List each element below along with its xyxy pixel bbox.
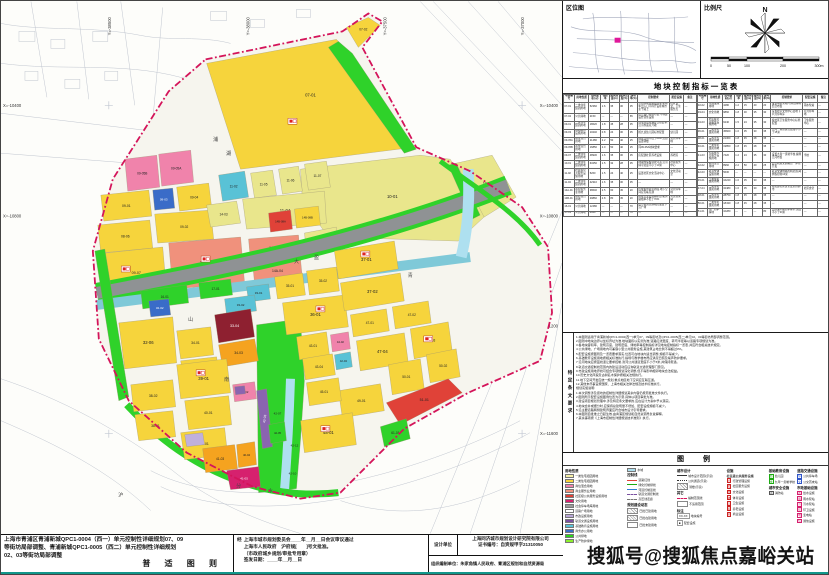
legend-section-title: 设施 <box>727 468 767 473</box>
legend-swatch-icon <box>565 499 574 503</box>
legend-item: XX-XX地块编号 <box>677 513 725 519</box>
legend-swatch-icon <box>565 484 574 488</box>
legend-column: 水域控制线道路红线绿化控制绿线河道控制蓝线轨道交通控制线高压线走廊规划建设动态已… <box>627 468 677 544</box>
parcel-label: 11-06 <box>287 178 295 182</box>
table-row: 48-01二类住宅组团用地287501.8452835——— <box>697 193 829 201</box>
legend-swatch-icon <box>565 504 574 508</box>
road-name-char: 盈 <box>314 255 319 261</box>
legend-column: 用地性质一类住宅组团用地二类住宅组团用地商住混合用地商业服务业用地社区级公共服务… <box>565 468 627 544</box>
approval-line1: 上海市城市规划委员会____年__月__日会议审议通过 <box>244 537 354 544</box>
table-row: 09-01二类住宅组团用地186201.8452835住宅布局应满足日照要求,沿… <box>564 121 697 129</box>
info-panel: 区位图 比例尺 N <box>563 1 829 572</box>
legend-item: 信通信设施 <box>797 519 826 524</box>
legend-facility-icon: 商 <box>727 512 732 517</box>
legend-item-label: 卫生设施 <box>733 501 745 505</box>
legend-facility-icon: 水 <box>797 491 802 496</box>
indicator-table: 地块编号用地性质用地面积(㎡)容积率建筑高度(m)建筑密度(%)绿地率(%)控制… <box>563 94 697 217</box>
legend-line-icon <box>627 499 637 500</box>
legend-item: 编制范围线 <box>677 496 725 500</box>
legend-item: 公共绿地 <box>565 534 625 538</box>
legend-section-title: 控制线 <box>627 472 675 477</box>
legend-swatch-icon <box>565 519 574 523</box>
north-arrow-icon: N <box>745 7 785 53</box>
legend-item: 绿化控制绿线 <box>627 483 675 487</box>
parcel-label: 42-10 <box>289 472 297 476</box>
legend-section-title: 规划建设动态 <box>627 502 675 507</box>
table-row: 42-02商住混合用地89602.2504025结合轨道交通站点一体化开发—— <box>697 162 829 170</box>
legend-item: 卫卫生设施 <box>727 501 767 506</box>
legend-item-label: 九年一贯制学校 <box>775 480 795 484</box>
legend-facility-icon: 行 <box>727 478 732 483</box>
legend-facility-icon: 停 <box>797 474 802 479</box>
grid-y-label: Y=-38000 <box>246 16 251 35</box>
legend-item: 养养老设施 <box>727 506 767 511</box>
parcel-label: 32-02 <box>156 306 164 310</box>
road-name-char: 湖 <box>226 150 231 157</box>
legend-item: 社区级公共服务设施用地 <box>565 494 625 498</box>
parcel-label: 33-02 <box>237 303 245 307</box>
legend-column: 基础教育设施幼幼儿园学九年一贯制学校城市安全设施消消防站 <box>769 468 797 544</box>
legend-item: 轨道交通设施用地 <box>565 519 625 523</box>
road-name-char: 山 <box>188 316 193 323</box>
parcel-label: 09-05A <box>171 166 182 170</box>
map-type-label: 普 适 图 则 <box>142 558 223 569</box>
legend-item-label: 配套设施 <box>684 521 696 525</box>
legend-item-label: 公共通道(示意) <box>688 479 707 483</box>
parcel-label: 14B-08B <box>302 215 313 219</box>
road-name-char: 青 <box>408 272 413 279</box>
location-marker <box>615 38 621 43</box>
legend-annotation-icon: XX-XX <box>677 513 690 519</box>
grid-x-label: X=-10800 <box>540 214 559 219</box>
legend-section-title: 标注 <box>677 508 725 513</box>
parcel-label: 39-01 <box>198 376 209 381</box>
legend-hatch-icon <box>627 522 638 528</box>
parcel-label: 32-06 <box>143 340 154 345</box>
table-header: 用地性质 <box>708 95 722 103</box>
table-header: 备注 <box>817 95 829 103</box>
legend-item: 道路红线 <box>627 478 675 482</box>
legend-item-label: 水域 <box>637 468 643 472</box>
legend-section-title: 道路交通设施 <box>797 468 826 473</box>
legend-line-icon <box>677 480 687 481</box>
table-header: 配套设施 <box>669 95 683 103</box>
legend-item-label: 一类住宅组团用地 <box>575 474 598 478</box>
map-parcel <box>235 386 246 395</box>
parcel-label: 11-05 <box>260 182 268 186</box>
table-row: 33-04文化用地98601.8303530设置社区文化中心及地下公共停车库公共… <box>697 110 829 118</box>
parcel-label: 07-01 <box>305 93 316 98</box>
parcel-label: 08-06 <box>121 235 130 239</box>
scale-tick-label: 300m <box>815 64 824 68</box>
legend-line-icon <box>677 475 687 476</box>
legend-item-label: 文化设施 <box>733 490 745 494</box>
legend-item: 高压线走廊 <box>627 497 675 501</box>
parcel-label: 33-01 <box>255 291 263 295</box>
legend-item-label: 商业服务业用地 <box>575 489 595 493</box>
legend-line-icon <box>627 480 637 481</box>
table-row: 34-03社区级公共服务设施用地62401.5243530按社区卫生服务中心标准… <box>697 118 829 129</box>
legend-title: 图 例 <box>563 453 829 466</box>
legend-item-label: 道路广场用地 <box>575 509 592 513</box>
legend-facility-icon: 文 <box>727 490 732 495</box>
legend-item: 已批已建用地 <box>627 508 675 514</box>
scale-tick-label: 50 <box>727 64 731 68</box>
design-org-cell: 设计单位 上海同济城市规划设计研究院有限公司 证书编号：自资规甲字2131005… <box>429 535 563 572</box>
legend-hatch-icon <box>627 515 638 521</box>
table-row: 07-01二类住宅组团用地523601.6353035沿街建筑应贴线建设,机动车… <box>564 102 697 113</box>
parcel-label: 09-05B <box>137 171 147 175</box>
parcel-label: 10-01 <box>387 194 398 199</box>
table-row: 11-02社区级公共服务设施用地52601.5244025设置社区文化活动中心文… <box>564 169 697 180</box>
table-row: 09-03基础教育设施用地102400.8243035按九班幼儿园标准配置幼儿园… <box>564 129 697 137</box>
legend-swatch-icon <box>565 529 574 533</box>
parcel-label: 11-07 <box>313 174 321 178</box>
parcel-label: 16-01 <box>161 295 169 299</box>
legend-line-icon <box>627 489 637 490</box>
table-header: 用地面积(㎡) <box>589 95 601 103</box>
legend-item-label: 社区服务设施 <box>733 484 750 488</box>
indicator-tables: 地块编号用地性质用地面积(㎡)容积率建筑高度(m)建筑密度(%)绿地率(%)控制… <box>563 94 829 217</box>
legend-hatch-icon <box>627 508 638 514</box>
parcel-label: 35-01 <box>286 284 294 288</box>
legend-item: 道路广场用地 <box>565 509 625 513</box>
parcel-label: 44-02 <box>337 340 345 344</box>
legend-item-label: 体育设施 <box>733 496 745 500</box>
legend-item-label: 市政设施用地 <box>575 514 592 518</box>
legend-swatch-icon <box>565 509 574 513</box>
legend-item-label: 轨道交通控制线 <box>638 492 658 496</box>
table-header: 建筑高度(m) <box>609 95 619 103</box>
scale-tick-label: 100 <box>744 64 750 68</box>
legend-item-label: 公共绿地 <box>575 534 587 538</box>
legend-facility-icon: 卫 <box>727 501 732 506</box>
table-row: 50-01二类住宅组团用地184301.8452835——— <box>697 201 829 209</box>
grid-x-label: X=-10800 <box>3 214 22 219</box>
scale-tick-label: 0 <box>710 64 712 68</box>
plan-title-line2: 等街坊局部调整、青浦新城QPC1-0005（西二）单元控制性详细规划 <box>4 545 230 553</box>
legend-item: 公共通道(示意) <box>677 479 725 483</box>
legend-item: 商商业设施 <box>727 512 767 517</box>
legend-facility-icon: 交 <box>797 479 802 484</box>
legend-item-label: 社会停车场库用地 <box>575 504 598 508</box>
table-row: 07-02公共绿地2150———65结合慢行通道布置,不得建设经营性设施—— <box>564 113 697 121</box>
parcel-label: 47-04 <box>377 349 388 354</box>
table-row: 41-03社区级公共服务设施用地74201.2243530设置九年一贯制学校,操… <box>697 152 829 163</box>
table-header: 用地性质 <box>574 95 588 103</box>
legend-item-label: 文化用地 <box>575 499 587 503</box>
legend-item: 消消防站 <box>769 491 795 496</box>
parcel-label: 09-04 <box>190 195 198 199</box>
legend-item-label: 污水泵站 <box>803 502 815 506</box>
table-header: 容积率 <box>734 95 743 103</box>
legend-swatch-icon <box>565 524 574 528</box>
legend-item-label: 养老设施 <box>733 507 745 511</box>
planning-sheet: X=-10400X=-10400X=-10800X=-10800X=-11200… <box>0 0 829 575</box>
parcel-label: 50-02 <box>439 364 447 368</box>
parcel-label: 47-01 <box>366 321 374 325</box>
parcel-label: 14-03 <box>220 212 228 216</box>
parcel-label: 42-05 <box>274 431 282 435</box>
legend-item: 文化用地 <box>565 499 625 503</box>
legend-facility-icon: 社 <box>727 484 732 489</box>
parcel-label: 35-02 <box>319 279 327 283</box>
legend-column: 设施社区级公共服务设施行行政管理设施社社区服务设施文文化设施体体育设施卫卫生设施… <box>727 468 769 544</box>
parcel-label: 14B-08A <box>275 219 286 223</box>
legend-item: 水域 <box>627 468 675 472</box>
scale-title: 比例尺 <box>704 3 722 12</box>
legend-facility-icon: 消 <box>769 491 774 496</box>
legend-item-label: 环卫设施 <box>803 508 815 512</box>
location-map-title: 区位图 <box>566 3 584 12</box>
parcel-label: 42-07 <box>274 412 282 416</box>
parcel-label: 36-01 <box>310 312 321 317</box>
table-row: 40-01二类住宅组团用地198501.8452835——— <box>697 144 829 152</box>
legend-facility-icon: 电 <box>797 513 802 518</box>
parcel-label: 09-01 <box>122 204 131 208</box>
legend-item: 社社区服务设施 <box>727 484 767 489</box>
legend-item: 雨雨水泵站 <box>797 496 826 501</box>
map-canvas: X=-10400X=-10400X=-10800X=-10800X=-11200… <box>1 1 562 534</box>
legend-item-label: 社区级公共服务设施用地 <box>575 494 607 498</box>
table-row: 42-03轨道交通设施用地5630————轨道交通线路控制范围,两侧各控制10米… <box>697 170 829 178</box>
planning-map: X=-10400X=-10400X=-10800X=-10800X=-11200… <box>1 1 563 534</box>
sohu-watermark: 搜狐号@搜狐焦点嘉峪关站 <box>587 541 815 568</box>
table-row: 16-01公共绿地12480———70结合轨道交通站点设置下沉广场—— <box>564 203 697 211</box>
grid-y-label: Y=-37000 <box>520 16 525 35</box>
table-row: 10-01二类住宅组团用地632501.5322835地块内保留现状河道,沿河绿… <box>564 161 697 169</box>
legend-facility-icon: 雨 <box>797 496 802 501</box>
legend-hatch-icon <box>677 501 688 507</box>
legend-item: ■配套设施 <box>677 520 725 526</box>
table-header: 控制要求 <box>771 95 803 103</box>
legend-item-label: 已批已建用地 <box>639 509 656 513</box>
legend-item-label: 编制范围线 <box>688 496 702 500</box>
table-row: 38-01二类住宅组团用地213601.8452835——— <box>697 136 829 144</box>
parcel-label: 43-04 <box>315 365 323 369</box>
legend-item-label: 雨水泵站 <box>803 497 815 501</box>
road-name-char: 大 <box>294 258 299 265</box>
provisions-text: 1.本图则适用于青浦新城QPC1-0004(西一)单元07、09等街坊及QPC1… <box>574 333 829 452</box>
legend-item: 行行政管理设施 <box>727 478 767 483</box>
legend-item-label: 二类住宅组团用地 <box>575 479 598 483</box>
legend-item: 污污水泵站 <box>797 502 826 507</box>
legend-annotation-icon: ■ <box>677 520 683 526</box>
indicator-table-title: 地块控制指标一览表 <box>563 79 829 94</box>
parcel-label: 09-03 <box>160 197 168 201</box>
legend-item: 交公交首末站 <box>797 479 826 484</box>
parcel-label: 17-01 <box>212 287 220 291</box>
legend-item: 二类住宅组团用地 <box>565 479 625 483</box>
table-row: 51-01生产防护绿地10280———80沿高速公路防护绿带,宽度不小于30米—… <box>697 209 829 217</box>
grid-x-label: X=-10400 <box>540 103 559 108</box>
provisions-side-label: 特定条文要求 <box>563 333 574 452</box>
grid-x-label: X=-10400 <box>3 103 22 108</box>
parcel-label: 61-01 <box>391 431 399 435</box>
parcel-label: 34-01 <box>191 341 200 345</box>
legend-section-subtitle: 社区级公共服务设施 <box>727 474 767 478</box>
legend-item: 商住混合用地 <box>565 484 625 488</box>
parcel-label: 37-01 <box>361 257 372 262</box>
grid-y-label: Y=-37500 <box>382 16 387 35</box>
legend-item-label: 公交首末站 <box>803 480 817 484</box>
approval-line4: 签发日期：____年__月__日 <box>244 557 354 564</box>
legend-swatch-icon <box>565 494 574 498</box>
scale-tick-label: 200 <box>780 64 786 68</box>
indicator-table: 地块编号用地性质用地面积(㎡)容积率建筑高度(m)建筑密度(%)绿地率(%)控制… <box>697 94 829 217</box>
legend-item-label: 地块编号 <box>691 514 703 518</box>
scale-box: 比例尺 N 050100200300m <box>701 1 829 78</box>
legend-item-label: 绿化控制绿线 <box>638 483 655 487</box>
legend-item-label: 行政管理设施 <box>733 479 750 483</box>
legend-columns: 用地性质一类住宅组团用地二类住宅组团用地商住混合用地商业服务业用地社区级公共服务… <box>563 466 829 545</box>
indicator-table-box: 地块控制指标一览表 地块编号用地性质用地面积(㎡)容积率建筑高度(m)建筑密度(… <box>563 79 829 333</box>
legend-section-title: 城市安全设施 <box>769 485 795 490</box>
legend-swatch-icon <box>565 534 574 538</box>
parcel-label: 40-01 <box>204 411 213 415</box>
legend-item-label: 变电站 <box>803 513 812 517</box>
legend-swatch-icon <box>565 514 574 518</box>
plan-title-cell: 上海市青浦区青浦新城QPC1-0004（西一）单元控制性详细规划07、09 等街… <box>1 535 234 572</box>
legend-facility-icon: 养 <box>727 506 732 511</box>
parcel-label: 34-03 <box>234 351 243 355</box>
parcel-label: 40-04 <box>243 453 251 457</box>
table-row: 14A-01商业服务业用地386402.5604520形成集中商业界面,地下空间… <box>564 188 697 196</box>
legend-column: 道路交通设施停公共停车场交公交首末站市政基础设施水给水设施雨雨水泵站污污水泵站环… <box>797 468 828 544</box>
legend-item: 轨道交通控制线 <box>627 492 675 496</box>
scale-graphic: N 050100200300m <box>701 1 829 77</box>
legend-item-label: 高压线走廊 <box>638 497 652 501</box>
legend-item-label: 通信设施 <box>803 519 815 523</box>
table-row: 32-02市政设施用地42801.2154020设置雨水泵站,与周边绿地结合布置… <box>697 102 829 110</box>
location-map-sketch <box>563 1 700 76</box>
legend-item-label: 轨道交通设施用地 <box>575 519 598 523</box>
table-header: 用地面积(㎡) <box>722 95 734 103</box>
map-parcel <box>185 433 205 447</box>
table-header: 建筑密度(%) <box>753 95 763 103</box>
legend-facility-icon: 污 <box>797 502 802 507</box>
parcel-label: 50-01 <box>402 375 410 379</box>
parcel-label: 33-04 <box>230 324 239 328</box>
legend-facility-icon: 环 <box>797 507 802 512</box>
legend-item: 市政设施用地 <box>565 514 625 518</box>
location-map-box: 区位图 <box>563 1 701 78</box>
title-block: 上海市青浦区青浦新城QPC1-0004（西一）单元控制性详细规划07、09 等街… <box>1 534 563 572</box>
road-name-char: 沪 <box>118 492 123 499</box>
legend-column: 城市设计城市设计范围(示意)公共通道(示意)骑楼(示意)其它编制范围线不适用范围… <box>677 468 727 544</box>
legend-item: 停公共停车场 <box>797 474 826 479</box>
parcel-label: 37-02 <box>367 289 378 294</box>
special-provisions-box: 特定条文要求 1.本图则适用于青浦新城QPC1-0004(西一)单元07、09等… <box>563 333 829 453</box>
legend-item-label: 不适用范围 <box>689 502 703 506</box>
legend-item: 商务办公用地 <box>565 529 625 533</box>
legend-swatch-icon <box>565 539 574 543</box>
legend-item: 基础教育设施用地 <box>565 524 625 528</box>
legend-facility-icon: 信 <box>797 519 802 524</box>
legend-item-label: 给水设施 <box>803 491 815 495</box>
grid-x-label: X=-11600 <box>540 431 559 436</box>
design-unit-label: 设计单位 <box>429 535 458 555</box>
parcel-label: 38-02 <box>149 394 158 398</box>
parcel-label: 51-01 <box>420 398 429 402</box>
legend-facility-icon: 学 <box>769 479 774 484</box>
legend-facility-icon: 幼 <box>769 474 774 479</box>
legend-item-label: 幼儿园 <box>775 474 784 478</box>
legend-item: 社会停车场库用地 <box>565 504 625 508</box>
legend-item: 一类住宅组团用地 <box>565 474 625 478</box>
parcel-label: 41-03 <box>216 457 224 461</box>
approval-prefix: 经 <box>237 537 242 570</box>
table-header: 配套设施 <box>803 95 817 103</box>
table-header: 容积率 <box>601 95 610 103</box>
legend-item: 不适用范围 <box>677 501 725 507</box>
note-line: 7.其余事项按《上海市控制性详细规划技术准则》执行。 <box>576 416 828 420</box>
legend-item-label: 城市设计范围(示意) <box>688 474 713 478</box>
table-header: 建筑高度(m) <box>743 95 753 103</box>
table-row: 36-01二类住宅组团用地458201.6353035沿河一侧应退让蓝线不小于1… <box>697 128 829 136</box>
table-row: 17-01公共绿地8620———70——— <box>564 211 697 216</box>
table-header: 控制要求 <box>637 95 669 103</box>
legend-item: 环环卫设施 <box>797 507 826 512</box>
table-header: 建筑密度(%) <box>619 95 629 103</box>
legend-swatch-icon <box>627 468 636 472</box>
parcel-label: 07-02 <box>359 28 367 32</box>
legend-hatch-icon <box>677 483 688 489</box>
table-row: 11-04二类住宅组团用地423101.6353035——— <box>564 180 697 188</box>
table-row: 47-04二类住宅组团用地324801.6353035应配建社区食堂及生鲜超市社… <box>697 185 829 193</box>
legend-item: 已批在建用地 <box>627 515 675 521</box>
parcel-label: 43-01 <box>309 344 317 348</box>
parcel-label: 09-02 <box>180 225 188 229</box>
legend-item: 电变电站 <box>797 513 826 518</box>
legend-line-icon <box>677 498 687 499</box>
approval-cell: 经 上海市城市规划委员会____年__月__日会议审议通过 上海市人民政府 沪府… <box>234 535 429 572</box>
legend-section-title: 用地性质 <box>565 468 625 473</box>
table-header: 绿地率(%) <box>762 95 771 103</box>
legend-swatch-icon <box>565 479 574 483</box>
legend-facility-icon: 体 <box>727 495 732 500</box>
legend-item-label: 已批未建用地 <box>639 523 656 527</box>
legend-item: 骑楼(示意) <box>677 483 725 489</box>
legend-section-title: 基础教育设施 <box>769 468 795 473</box>
approval-line2: 上海市人民政府 沪府规[ ]号文批准。 <box>244 544 354 551</box>
parcel-label: 14A-04 <box>272 269 283 273</box>
legend-item-label: 基础教育设施用地 <box>575 524 598 528</box>
legend-item: 已批未建用地 <box>627 522 675 528</box>
organizing-unit: 组织编制单位：朱家角镇人民政府、青浦区规划和自然资源局 <box>429 556 563 572</box>
road-name-char: 分 <box>236 483 241 490</box>
scale-bar: 050100200300m <box>710 57 824 68</box>
parcel-label: 11-02 <box>230 184 238 188</box>
table-header: 地块编号 <box>564 95 575 103</box>
table-header: 绿地率(%) <box>629 95 638 103</box>
legend-item: 水给水设施 <box>797 491 826 496</box>
table-row: 09-07二类住宅组团用地489301.6353035应配建社区养老设施养老院— <box>564 153 697 161</box>
parcel-label: 42-04 <box>340 359 348 363</box>
legend-item-label: 消防站 <box>775 491 784 495</box>
legend-item: 城市设计范围(示意) <box>677 474 725 478</box>
legend-item-label: 商务办公用地 <box>575 529 592 533</box>
table-header: 地块编号 <box>697 95 708 103</box>
legend-line-icon <box>627 494 637 495</box>
table-row: 09-05B商住混合用地168502.0504025同09-05A地块要求—— <box>564 145 697 153</box>
design-cert: 证书编号：自资规甲字21310050 <box>458 542 563 548</box>
table-row: 09-05A商住混合用地214802.2504025商业比例不低于20%,沿街设… <box>564 137 697 145</box>
legend-item-label: 商业设施 <box>733 512 745 516</box>
legend-item-label: 商住混合用地 <box>575 484 592 488</box>
grid-y-label: Y=-38500 <box>107 16 112 35</box>
legend-section-title: 市政基础设施 <box>797 485 826 490</box>
